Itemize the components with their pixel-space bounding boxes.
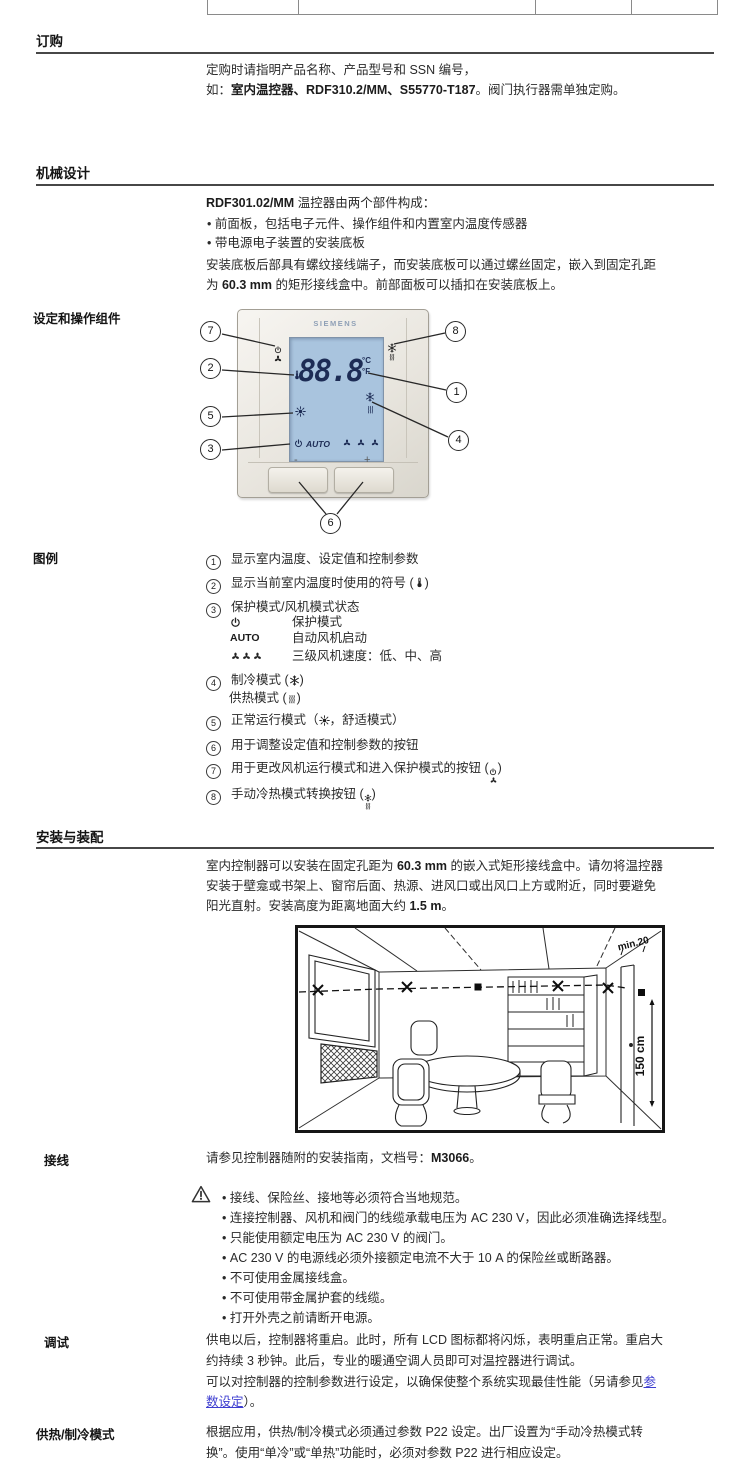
section-label-heat-cool: 供热/制冷模式	[36, 1424, 114, 1443]
section-label-controls: 设定和操作组件	[33, 308, 121, 327]
commissioning-line-3-text: 可以对控制器的控制参数进行设定，以确保使整个系统实现最佳性能（另请参见	[206, 1375, 644, 1389]
warning-text: 不可使用金属接线盒。	[230, 1271, 355, 1285]
thermometer-icon	[414, 576, 425, 589]
bullet-marker: •	[222, 1271, 226, 1285]
table-cell	[208, 0, 299, 14]
mounting-line-3: 阳光直射。安装高度为距离地面大约 1.5 m。	[206, 898, 454, 914]
legend-item-4-line-1: 4制冷模式 ()	[206, 672, 304, 691]
hole-spacing-value: 60.3 mm	[397, 859, 447, 873]
legend-text-6: 用于调整设定值和控制参数的按钮	[231, 738, 419, 752]
mechanical-para-line-2: 为 60.3 mm 的矩形接线盒中。前部面板可以插扣在安装底板上。	[206, 277, 563, 293]
warning-text: 连接控制器、风机和阀门的线缆承载电压为 AC 230 V，因此必须准确选择线型。	[230, 1211, 674, 1225]
snowflake-icon	[364, 794, 372, 802]
warning-item: • 不可使用带金属护套的线缆。	[222, 1290, 392, 1306]
warning-item: • 打开外壳之前请断开电源。	[222, 1310, 380, 1326]
table-cell	[536, 0, 631, 14]
legend-sub-fans	[230, 648, 263, 664]
callout-1: 1	[446, 382, 467, 403]
mounting-line-3-pre: 阳光直射。安装高度为距离地面大约	[206, 899, 409, 913]
fan-icon	[252, 651, 263, 662]
legend-text-4b-post: )	[297, 691, 301, 705]
callout-2: 2	[200, 358, 221, 379]
mechanical-para-2-pre: 为	[206, 278, 222, 292]
warning-text: AC 230 V 的电源线必须外接额定电流不大于 10 A 的保险丝或断路器。	[230, 1251, 619, 1265]
wiring-intro-pre: 请参见控制器随附的安装指南，文档号：	[206, 1151, 431, 1165]
legend-item-7: 7用于更改风机运行模式和进入保护模式的按钮 ()	[206, 760, 502, 785]
warning-item: • 接线、保险丝、接地等必须符合当地规范。	[222, 1190, 467, 1206]
legend-text-1: 显示室内温度、设定值和控制参数	[231, 552, 419, 566]
model-number: RDF301.02/MM	[206, 196, 294, 210]
callout-lines	[195, 305, 485, 550]
mechanical-bullet-2-text: 带电源电子装置的安装底板	[215, 236, 365, 250]
legend-text-2-post: )	[425, 576, 429, 590]
sun-icon	[319, 715, 330, 726]
section-label-wiring: 接线	[44, 1150, 69, 1169]
commissioning-line-3: 可以对控制器的控制参数进行设定，以确保使整个系统实现最佳性能（另请参见参	[206, 1374, 656, 1390]
ordering-product-codes: 室内温控器、RDF310.2/MM、S55770-T187	[231, 83, 476, 97]
power-icon	[230, 617, 241, 628]
legend-num-8: 8	[206, 790, 221, 805]
wiring-intro-post: 。	[469, 1151, 482, 1165]
warning-text: 接线、保险丝、接地等必须符合当地规范。	[230, 1191, 468, 1205]
warning-text: 只能使用额定电压为 AC 230 V 的阀门。	[230, 1231, 453, 1245]
ordering-line-2: 如：室内温控器、RDF310.2/MM、S55770-T187。阀门执行器需单独…	[206, 82, 626, 98]
height-dimension-label: 150 cm	[633, 1036, 647, 1077]
mechanical-intro-text: 温控器由两个部件构成：	[294, 196, 435, 210]
mounting-line-1: 室内控制器可以安装在固定孔距为 60.3 mm 的嵌入式矩形接线盒中。请勿将温控…	[206, 858, 663, 874]
mounting-location-figure: min.20 150 cm	[295, 925, 665, 1133]
bullet-marker: •	[207, 236, 211, 250]
thermostat-diagram: SIEMENS 88.8 °C °F AUTO	[195, 305, 485, 550]
wiring-intro: 请参见控制器随附的安装指南，文档号：M3066。	[206, 1150, 482, 1166]
warning-item: • AC 230 V 的电源线必须外接额定电流不大于 10 A 的保险丝或断路器…	[222, 1250, 619, 1266]
hole-spacing-value: 60.3 mm	[222, 278, 272, 292]
legend-text-8-post: )	[372, 787, 376, 801]
warning-item: • 不可使用金属接线盒。	[222, 1270, 355, 1286]
legend-text-2-pre: 显示当前室内温度时使用的符号 (	[231, 576, 414, 590]
legend-text-4b-pre: 供热模式 (	[229, 691, 287, 705]
parameter-settings-link[interactable]: 数设定	[206, 1395, 244, 1409]
mounting-line-2: 安装于壁龛或书架上、窗帘后面、热源、进风口或出风口上方或附近，同时要避免	[206, 878, 656, 894]
mounting-line-3-post: 。	[441, 899, 454, 913]
legend-item-1: 1显示室内温度、设定值和控制参数	[206, 551, 419, 570]
mechanical-bullet-1: • 前面板，包括电子元件、操作组件和内置室内温度传感器	[207, 216, 527, 232]
bullet-marker: •	[222, 1211, 226, 1225]
mechanical-para-2-post: 的矩形接线盒中。前部面板可以插扣在安装底板上。	[272, 278, 563, 292]
legend-item-4-line-2: 供热模式 ()	[229, 690, 301, 706]
fan-icon	[489, 776, 498, 785]
legend-num-2: 2	[206, 579, 221, 594]
section-heading-mechanical: 机械设计	[36, 162, 90, 182]
commissioning-line-2: 约持续 3 秒钟。此后，专业的暖通空调人员即可对温控器进行调试。	[206, 1353, 582, 1369]
bullet-marker: •	[222, 1291, 226, 1305]
bullet-marker: •	[222, 1231, 226, 1245]
legend-sub-fans-text: 三级风机速度：低、中、高	[292, 648, 442, 664]
table-cell	[299, 0, 536, 14]
bullet-marker: •	[222, 1251, 226, 1265]
warning-text: 打开外壳之前请断开电源。	[230, 1311, 380, 1325]
legend-text-4a-pre: 制冷模式 (	[231, 673, 289, 687]
snowflake-icon	[289, 675, 300, 686]
legend-num-3: 3	[206, 603, 221, 618]
legend-sub-power	[230, 614, 241, 630]
legend-sub-auto-text: 自动风机启动	[292, 630, 367, 646]
radiator	[321, 1044, 377, 1083]
section-heading-mounting: 安装与装配	[36, 826, 104, 846]
legend-text-7-pre: 用于更改风机运行模式和进入保护模式的按钮 (	[231, 761, 489, 775]
mechanical-para-line-1: 安装底板后部具有螺纹接线端子，而安装底板可以通过螺丝固定，嵌入到固定孔距	[206, 257, 656, 273]
mechanical-intro: RDF301.02/MM 温控器由两个部件构成：	[206, 195, 435, 211]
legend-text-7-post: )	[498, 761, 502, 775]
legend-item-5: 5正常运行模式（，舒适模式）	[206, 712, 405, 731]
ordering-line-2-suffix: 。阀门执行器需单独定购。	[476, 83, 626, 97]
legend-text-4a-post: )	[300, 673, 304, 687]
table-cell	[632, 0, 718, 14]
legend-num-4: 4	[206, 676, 221, 691]
legend-text-5-pre: 正常运行模式（	[231, 713, 319, 727]
legend-num-6: 6	[206, 741, 221, 756]
section-label-commissioning: 调试	[44, 1332, 69, 1351]
callout-7: 7	[200, 321, 221, 342]
heat-cool-line-2: 换”。使用“单冷”或“单热”功能时，必须对参数 P22 进行相应设定。	[206, 1445, 569, 1461]
warning-text: 不可使用带金属护套的线缆。	[230, 1291, 393, 1305]
ordering-line-1: 定购时请指明产品名称、产品型号和 SSN 编号，	[206, 62, 476, 78]
fan-icon	[230, 651, 241, 662]
callout-3: 3	[200, 439, 221, 460]
legend-sub-power-text: 保护模式	[292, 614, 342, 630]
callout-8: 8	[445, 321, 466, 342]
mechanical-bullet-1-text: 前面板，包括电子元件、操作组件和内置室内温度传感器	[215, 217, 528, 231]
callout-5: 5	[200, 406, 221, 427]
section-rule	[36, 52, 714, 54]
document-number: M3066	[431, 1151, 469, 1165]
legend-sub-auto-label: AUTO	[230, 632, 260, 646]
callout-4: 4	[448, 430, 469, 451]
bullet-marker: •	[222, 1311, 226, 1325]
warning-item: • 只能使用额定电压为 AC 230 V 的阀门。	[222, 1230, 453, 1246]
section-label-legend: 图例	[33, 548, 58, 567]
commissioning-line-1: 供电以后，控制器将重启。此时，所有 LCD 图标都将闪烁，表明重启正常。重启大	[206, 1332, 663, 1348]
legend-item-6: 6用于调整设定值和控制参数的按钮	[206, 737, 419, 756]
fan-icon	[241, 651, 252, 662]
warning-icon	[190, 1184, 212, 1204]
heat-icon	[287, 694, 297, 704]
legend-num-5: 5	[206, 716, 221, 731]
power-icon	[489, 768, 497, 776]
section-rule	[36, 184, 714, 186]
legend-item-2: 2显示当前室内温度时使用的符号 ()	[206, 575, 429, 594]
section-rule	[36, 847, 714, 849]
mechanical-bullet-2: • 带电源电子装置的安装底板	[207, 235, 365, 251]
warning-item: • 连接控制器、风机和阀门的线缆承载电压为 AC 230 V，因此必须准确选择线…	[222, 1210, 674, 1226]
heat-icon	[364, 802, 372, 810]
legend-item-8: 8手动冷热模式转换按钮 ()	[206, 786, 376, 810]
section-heading-ordering: 订购	[36, 30, 63, 50]
mounting-line-1-post: 的嵌入式矩形接线盒中。请勿将温控器	[447, 859, 663, 873]
mounting-line-1-pre: 室内控制器可以安装在固定孔距为	[206, 859, 397, 873]
legend-num-1: 1	[206, 555, 221, 570]
legend-text-3: 保护模式/风机模式状态	[231, 600, 359, 614]
mounting-height-value: 1.5 m	[409, 899, 441, 913]
heat-cool-line-1: 根据应用，供热/制冷模式必须通过参数 P22 设定。出厂设置为“手动冷热模式转	[206, 1424, 643, 1440]
bullet-marker: •	[207, 217, 211, 231]
legend-text-8-pre: 手动冷热模式转换按钮 (	[231, 787, 364, 801]
commissioning-line-4-text: ）。	[244, 1395, 263, 1409]
commissioning-line-4: 数设定）。	[206, 1394, 262, 1410]
parameter-settings-link[interactable]: 参	[644, 1375, 657, 1389]
bullet-marker: •	[222, 1191, 226, 1205]
legend-num-7: 7	[206, 764, 221, 779]
continued-table-fragment	[207, 0, 718, 15]
legend-text-5-post: ，舒适模式）	[330, 713, 405, 727]
ordering-line-2-prefix: 如：	[206, 83, 231, 97]
callout-6: 6	[320, 513, 341, 534]
